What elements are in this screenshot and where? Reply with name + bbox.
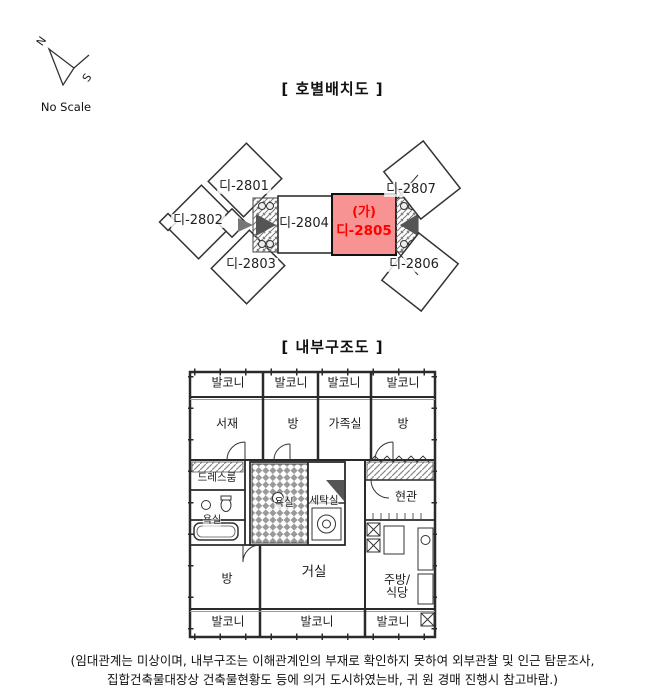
- room-label-balcony-bottom-1: 발코니: [211, 616, 244, 629]
- compass-tail: [74, 55, 89, 68]
- unit-label-di-2803: 디-2803: [224, 258, 278, 272]
- core-wedge-left-2: [238, 218, 253, 232]
- stair-circle: [259, 241, 266, 248]
- stair-circle: [401, 241, 408, 248]
- door-arcs-top: [227, 442, 393, 460]
- room-label-bath-center: 욕실: [274, 497, 293, 508]
- bath-sink: [202, 501, 211, 510]
- room-label-balcony-top-2: 발코니: [274, 377, 307, 390]
- unit-layout-title: [ 호별배치도 ]: [0, 78, 665, 99]
- unit-label-di-2807: 디-2807: [384, 183, 438, 197]
- footer-note-line2: 집합건축물대장상 건축물현황도 등에 의거 도시하였는바, 귀 원 경매 진행시…: [0, 670, 665, 689]
- unit-label-di-2802: 디-2802: [171, 214, 225, 228]
- room-label-family-room: 가족실: [328, 418, 361, 431]
- room-label-balcony-top-3: 발코니: [327, 377, 360, 390]
- appraisal-document-page: N S No Scale [ 호별배치도 ]: [0, 0, 665, 700]
- highlight-marker-di-2805: (가): [352, 205, 376, 221]
- room-label-room-top: 방: [287, 418, 298, 431]
- stair-circle: [259, 203, 266, 210]
- room-bottom-door-arc: [243, 545, 260, 562]
- room-label-balcony-bottom-3: 발코니: [376, 616, 409, 629]
- no-scale-label: No Scale: [28, 100, 104, 114]
- room-label-living-room: 거실: [302, 565, 327, 579]
- bath-toilet-tank: [221, 496, 231, 500]
- entrance-closet: [367, 462, 433, 480]
- room-label-kitchen-line2: 식당: [384, 586, 410, 599]
- room-label-room-top-right: 방: [397, 418, 408, 431]
- room-label-balcony-bottom-2: 발코니: [300, 616, 333, 629]
- room-label-bath-left: 욕실: [203, 516, 221, 527]
- footer-note: (임대관계는 미상이며, 내부구조는 이해관계인의 부재로 확인하지 못하여 외…: [0, 651, 665, 690]
- footer-note-line1: (임대관계는 미상이며, 내부구조는 이해관계인의 부재로 확인하지 못하여 외…: [0, 651, 665, 670]
- compass-north-label: N: [34, 34, 49, 48]
- room-label-balcony-top-1: 발코니: [211, 377, 244, 390]
- floor-plan-title: [ 내부구조도 ]: [0, 336, 665, 357]
- room-label-study: 서재: [216, 418, 238, 431]
- unit-label-di-2801: 디-2801: [217, 180, 271, 194]
- stair-circle: [267, 203, 274, 210]
- room-label-kitchen: 주방/ 식당: [384, 573, 410, 598]
- stair-circle: [267, 241, 274, 248]
- room-label-entrance: 현관: [395, 491, 417, 504]
- stair-circle: [401, 203, 408, 210]
- room-label-laundry: 세탁실: [310, 495, 339, 506]
- room-label-balcony-top-4: 발코니: [386, 377, 419, 390]
- room-label-kitchen-line1: 주방/: [384, 573, 410, 586]
- unit-label-di-2804: 디-2804: [277, 217, 331, 231]
- unit-label-di-2805: 디-2805: [336, 223, 392, 239]
- washer-box: [312, 508, 341, 540]
- room-label-dress-room: 드레스룸: [198, 472, 237, 483]
- entrance-door-arc: [371, 480, 389, 498]
- entrance-shoe-ticks: [373, 513, 421, 520]
- room-label-room-bottom: 방: [221, 573, 232, 586]
- unit-label-di-2806: 디-2806: [387, 258, 441, 272]
